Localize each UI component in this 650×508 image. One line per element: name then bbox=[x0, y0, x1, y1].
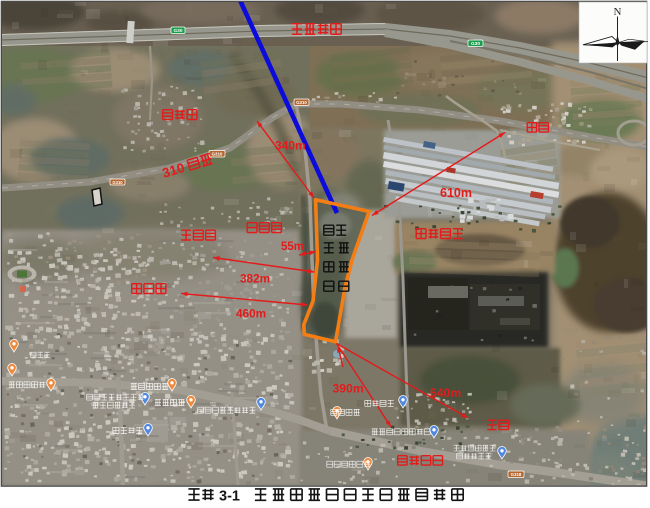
svg-text:460m: 460m bbox=[236, 307, 266, 321]
svg-text:390m: 390m bbox=[333, 382, 364, 396]
svg-text:G30: G30 bbox=[173, 28, 182, 34]
svg-text:55m: 55m bbox=[281, 241, 304, 253]
svg-text:G310: G310 bbox=[212, 152, 223, 157]
svg-text:3-1: 3-1 bbox=[219, 489, 240, 505]
svg-text:382m: 382m bbox=[240, 272, 270, 286]
svg-text:G30: G30 bbox=[471, 41, 480, 47]
svg-text:540m: 540m bbox=[430, 386, 461, 400]
svg-text:G310: G310 bbox=[112, 180, 123, 185]
svg-text:G310: G310 bbox=[296, 100, 307, 105]
svg-text:610m: 610m bbox=[440, 186, 472, 200]
svg-text:N: N bbox=[614, 6, 622, 18]
svg-text:G318: G318 bbox=[511, 472, 522, 477]
svg-text:340m: 340m bbox=[275, 139, 306, 153]
